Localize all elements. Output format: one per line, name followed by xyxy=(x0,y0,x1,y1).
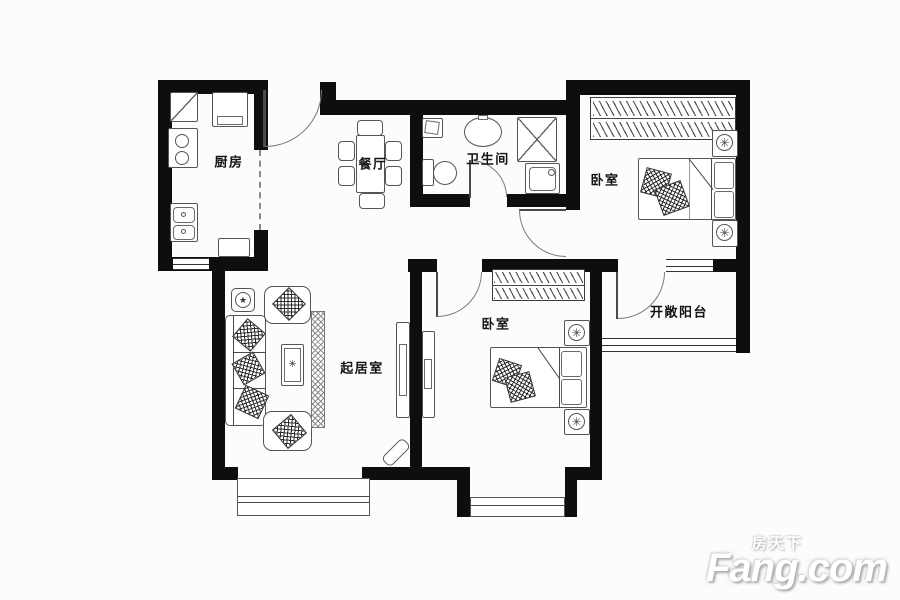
bedroom2-door-arc xyxy=(437,272,482,317)
kitchen-sink-drain-2 xyxy=(181,229,186,234)
bathroom-washbasin-bowl xyxy=(424,120,440,135)
flower-icon: ✳ xyxy=(716,134,733,151)
bedroom2-wardrobe-hangers-bottom xyxy=(494,288,583,299)
plant-icon: ★ xyxy=(235,292,251,308)
dining-chair-right-1 xyxy=(385,141,402,161)
kitchen-counter-bottom xyxy=(218,238,250,257)
bedroom2-bay-window xyxy=(470,497,565,517)
wall-hall-bedroom1-divider xyxy=(566,95,580,210)
toilet-bowl xyxy=(433,161,457,185)
washing-machine-knob xyxy=(548,169,555,176)
living-bay-window xyxy=(237,478,370,516)
room-label-bathroom: 卫生间 xyxy=(466,153,510,166)
wall-bedroom1-top xyxy=(566,80,750,95)
bedroom2-wardrobe-rail xyxy=(492,285,585,286)
wall-balcony-top-right xyxy=(713,259,750,272)
bathtub xyxy=(464,117,502,147)
flower-icon: ✳ xyxy=(716,224,733,241)
flower-glyph: ✳ xyxy=(719,227,729,239)
dining-chair-left-2 xyxy=(338,166,355,186)
entry-door-arc xyxy=(265,90,322,147)
kitchen-sink-drain-1 xyxy=(181,212,186,217)
flower-icon: ✳ xyxy=(568,324,585,341)
wall-bathroom-left xyxy=(410,100,423,207)
stove-burner-2 xyxy=(175,151,189,165)
wall-bottom-mid xyxy=(362,467,470,480)
table-star-glyph: ✳ xyxy=(288,360,296,370)
living-bay-window-glass1 xyxy=(238,496,369,497)
room-label-bedroom-master: 卧室 xyxy=(590,174,619,187)
dining-chair-right-2 xyxy=(385,166,402,186)
floor-decor-diagonal xyxy=(381,437,411,467)
kitchen-counter-top-shelf xyxy=(217,116,243,125)
room-label-living: 起居室 xyxy=(340,362,384,375)
dining-chair-top xyxy=(357,120,383,136)
balcony-bottom-window xyxy=(602,338,736,352)
bedroom2-wardrobe-hangers-top xyxy=(494,272,583,283)
watermark-brand-cn: 房天下 xyxy=(752,532,803,553)
floor-plan: ✳ ✳ ✳ ✳ ★ ✳ 厨房 餐厅 卫生间 卧室 卧室 起居室 开敞阳台 房天下… xyxy=(0,0,900,600)
plant-glyph: ★ xyxy=(239,296,247,305)
rug xyxy=(311,311,325,428)
wall-bathroom-bottom-left xyxy=(410,194,470,207)
tv xyxy=(399,344,407,396)
wall-bedroom2-right xyxy=(590,259,602,477)
flower-glyph: ✳ xyxy=(571,416,581,428)
living-bay-window-glass2 xyxy=(238,502,369,503)
kitchen-window xyxy=(173,258,209,270)
wall-kitchen-right-lower xyxy=(254,230,268,258)
room-label-bedroom-second: 卧室 xyxy=(481,318,510,331)
coffee-table-decor: ✳ xyxy=(284,348,301,382)
dining-chair-bottom xyxy=(359,193,385,209)
wall-bay2-stub-left xyxy=(457,477,470,517)
bathtub-faucet xyxy=(478,115,488,120)
bedroom1-balcony-window xyxy=(666,259,713,272)
wall-dining-top xyxy=(333,100,580,115)
watermark: 房天下 Fang.com xyxy=(694,532,894,596)
bedroom2-pillow-2 xyxy=(561,379,582,405)
fridge xyxy=(170,92,198,122)
bedroom1-pillow-1 xyxy=(714,162,734,189)
wall-living-left xyxy=(212,271,225,480)
bedroom2-pillow-1 xyxy=(561,351,582,377)
wall-bottom-left xyxy=(212,467,238,480)
wall-kitchen-pass-through xyxy=(259,150,261,230)
bedroom2-dresser-handle xyxy=(424,359,432,389)
bedroom1-pillow-2 xyxy=(714,191,734,218)
bedroom1-wardrobe-rail xyxy=(590,118,736,119)
room-label-dining: 餐厅 xyxy=(358,158,387,171)
room-label-balcony: 开敞阳台 xyxy=(650,306,708,319)
watermark-brand-en: Fang.com xyxy=(706,546,887,591)
dining-chair-left-1 xyxy=(338,141,355,161)
bedroom1-wardrobe-hangers-top xyxy=(593,101,733,116)
flower-glyph: ✳ xyxy=(571,327,581,339)
wall-bathroom-bottom-right xyxy=(507,194,566,207)
flower-icon: ✳ xyxy=(568,413,585,430)
bedroom1-bed-duvet-line xyxy=(689,159,690,219)
wall-bedroom1-right xyxy=(736,80,750,353)
flower-glyph: ✳ xyxy=(719,137,729,149)
bedroom2-bay-window-glass xyxy=(471,505,564,506)
wall-bay2-stub-right xyxy=(565,477,577,517)
stove-burner-1 xyxy=(175,134,189,148)
shower-stall xyxy=(517,117,557,162)
wall-living-bedroom2-divider xyxy=(410,259,422,477)
room-label-kitchen: 厨房 xyxy=(214,156,243,169)
bedroom1-door-arc xyxy=(519,210,566,257)
